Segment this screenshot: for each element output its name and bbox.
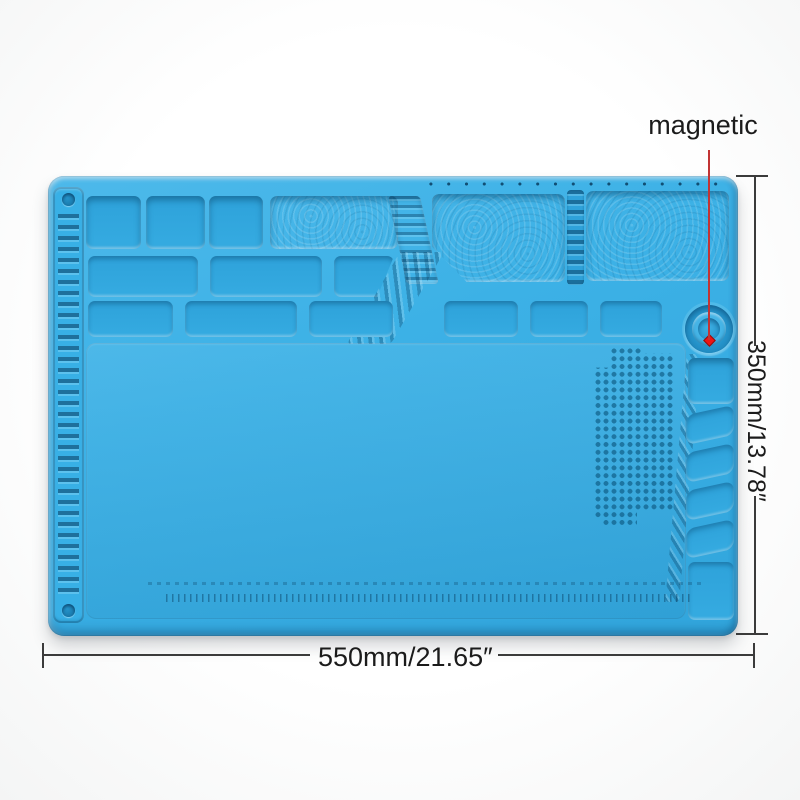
dimension-tick-bottom — [736, 633, 768, 635]
storage-cell — [146, 196, 205, 249]
textured-tray — [270, 196, 398, 249]
top-holes-row — [422, 180, 732, 187]
dimension-line-segment — [498, 654, 754, 656]
parts-tray — [185, 301, 297, 337]
dimension-line-segment — [754, 496, 756, 633]
dimension-tick-top — [736, 175, 768, 177]
product-photo: magnetic 350mm/13.78″ 550mm/21.65″ — [0, 0, 800, 800]
storage-cell — [209, 196, 263, 249]
height-dimension-label: 350mm/13.78″ — [739, 346, 772, 496]
textured-panel — [432, 194, 565, 282]
dimension-line-segment — [44, 654, 310, 656]
molded-ruler — [166, 594, 690, 602]
parts-tray — [444, 301, 518, 337]
magnetic-label: magnetic — [630, 110, 776, 142]
parts-tray — [600, 301, 662, 337]
width-dimension-label: 550mm/21.65″ — [318, 642, 490, 672]
dimension-tick-right — [753, 643, 755, 668]
side-tray — [688, 562, 734, 620]
parts-tray — [309, 301, 393, 337]
hang-hole-bottom — [62, 604, 75, 617]
parts-tray — [530, 301, 588, 337]
hang-hole-top — [62, 193, 75, 206]
diagonal-slot — [686, 443, 734, 483]
side-tray — [688, 358, 734, 404]
divider-ladder — [567, 190, 584, 285]
smd-grid — [593, 346, 673, 526]
parts-tray — [88, 301, 173, 337]
magnetic-pointer-line — [708, 150, 710, 340]
diagonal-slot — [686, 519, 734, 559]
parts-tray — [88, 256, 198, 297]
ruler-slots — [58, 214, 79, 598]
dimension-line-segment — [754, 177, 756, 346]
parts-tray — [210, 256, 322, 297]
left-ruler-strip — [53, 187, 84, 623]
soldering-mat — [48, 176, 738, 636]
molded-dashes — [148, 582, 704, 585]
storage-cell — [86, 196, 141, 249]
diagonal-slot — [686, 481, 734, 521]
